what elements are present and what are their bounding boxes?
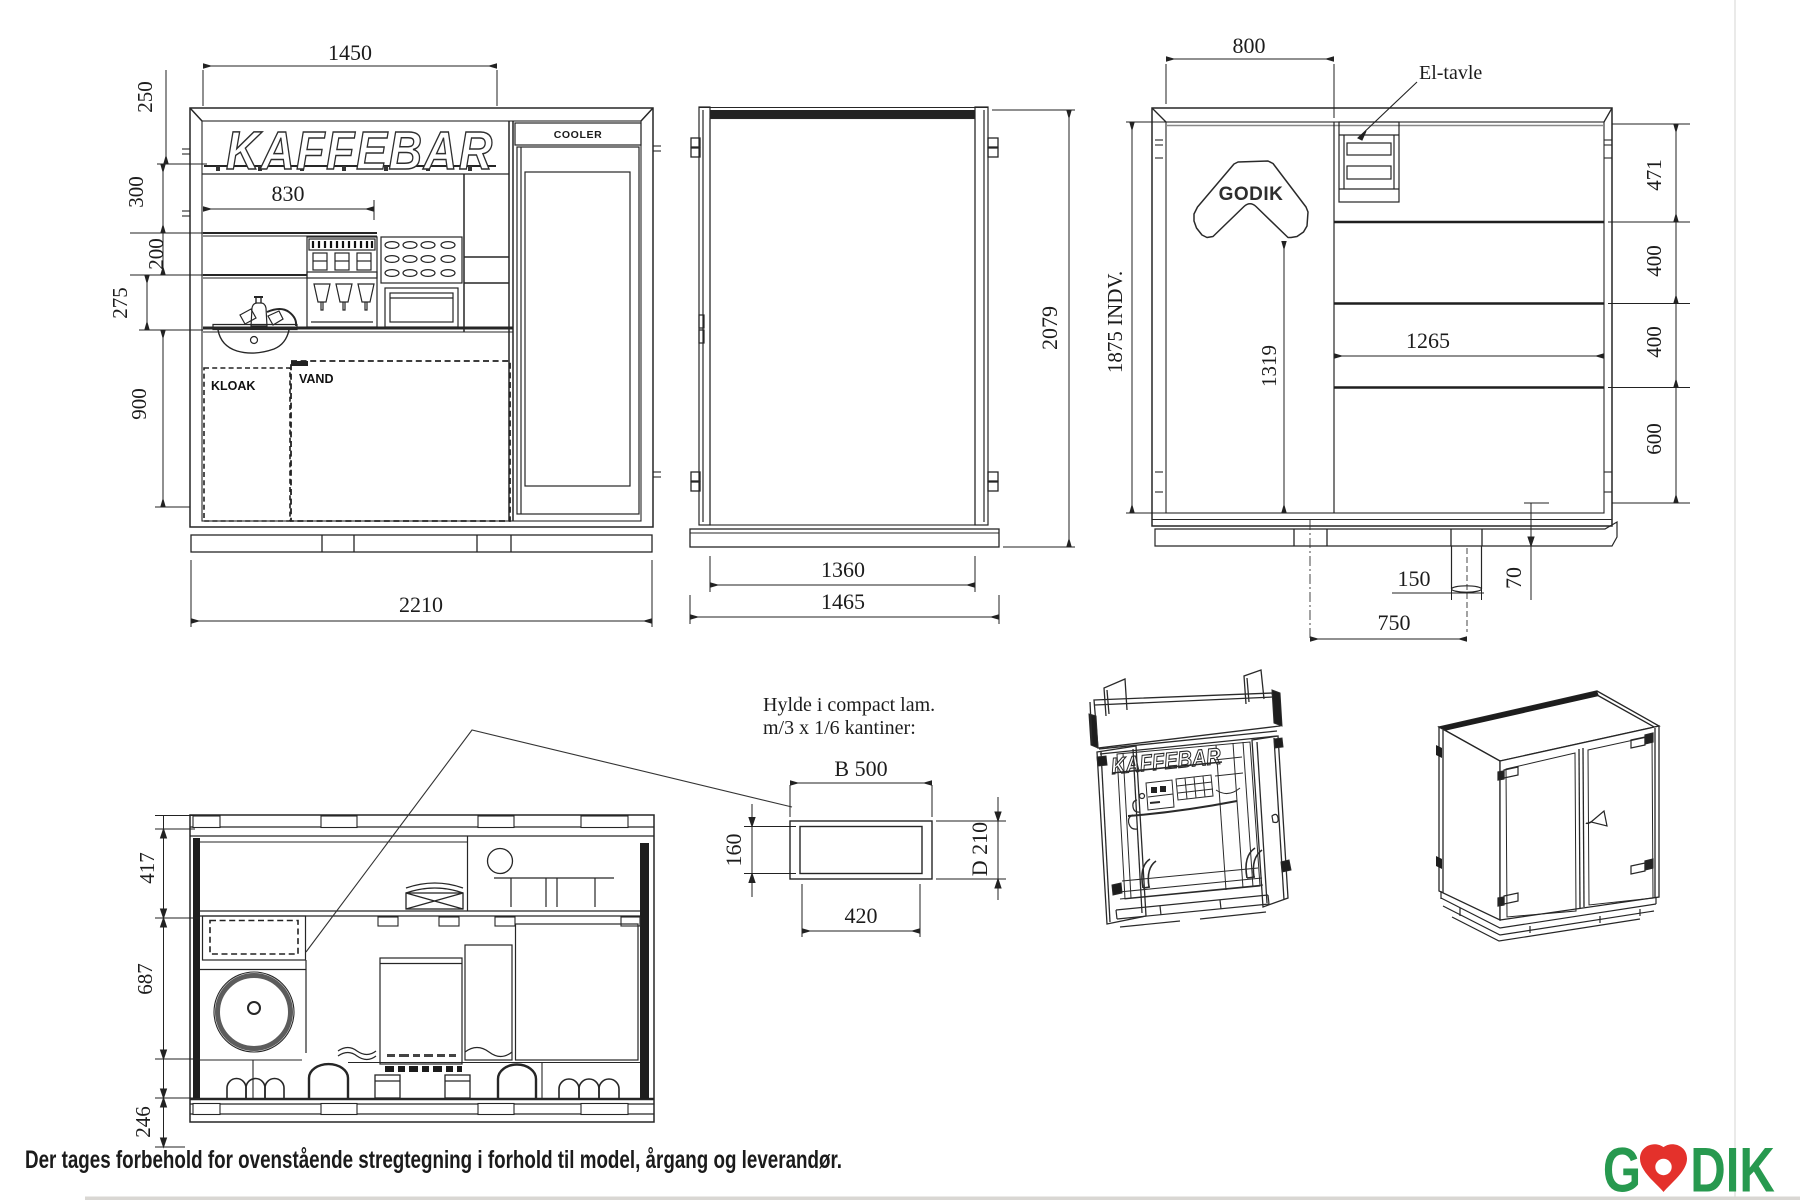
svg-text:420: 420 xyxy=(845,903,878,928)
svg-text:2210: 2210 xyxy=(399,592,443,617)
svg-text:1450: 1450 xyxy=(328,40,372,65)
svg-text:1319: 1319 xyxy=(1257,345,1281,387)
svg-text:830: 830 xyxy=(272,181,305,206)
svg-text:1465: 1465 xyxy=(821,589,865,614)
svg-text:1265: 1265 xyxy=(1406,328,1450,353)
svg-text:250: 250 xyxy=(133,81,157,113)
svg-text:Hylde i compact lam.: Hylde i compact lam. xyxy=(763,694,935,716)
svg-text:COOLER: COOLER xyxy=(554,129,603,141)
svg-text:400: 400 xyxy=(1642,245,1666,277)
svg-text:GODIK: GODIK xyxy=(1219,184,1284,205)
svg-text:200: 200 xyxy=(144,238,168,270)
svg-text:800: 800 xyxy=(1233,33,1266,58)
svg-text:G: G xyxy=(1603,1135,1641,1200)
svg-text:275: 275 xyxy=(108,287,132,319)
svg-text:B 500: B 500 xyxy=(834,756,887,781)
svg-text:471: 471 xyxy=(1642,159,1666,191)
svg-text:VAND: VAND xyxy=(299,372,334,386)
svg-text:El-tavle: El-tavle xyxy=(1419,62,1482,84)
svg-text:DIK: DIK xyxy=(1690,1135,1775,1200)
svg-text:900: 900 xyxy=(127,388,151,420)
svg-text:D 210: D 210 xyxy=(967,822,992,876)
svg-text:1360: 1360 xyxy=(821,557,865,582)
svg-text:400: 400 xyxy=(1642,326,1666,358)
svg-text:246: 246 xyxy=(131,1106,155,1138)
svg-text:m/3 x 1/6 kantiner:: m/3 x 1/6 kantiner: xyxy=(763,717,916,739)
svg-text:1875 INDV.: 1875 INDV. xyxy=(1103,271,1127,373)
svg-text:150: 150 xyxy=(1398,566,1431,591)
svg-text:750: 750 xyxy=(1378,610,1411,635)
svg-text:417: 417 xyxy=(135,852,159,884)
svg-text:687: 687 xyxy=(133,963,157,995)
svg-text:2079: 2079 xyxy=(1037,306,1062,350)
svg-text:600: 600 xyxy=(1642,423,1666,455)
svg-text:160: 160 xyxy=(721,834,746,867)
svg-text:KLOAK: KLOAK xyxy=(211,379,255,393)
svg-text:KAFFEBAR: KAFFEBAR xyxy=(226,121,494,181)
svg-text:70: 70 xyxy=(1501,567,1526,589)
svg-text:300: 300 xyxy=(124,176,148,208)
svg-text:Der tages forbehold for ovenst: Der tages forbehold for ovenstående stre… xyxy=(25,1146,842,1174)
